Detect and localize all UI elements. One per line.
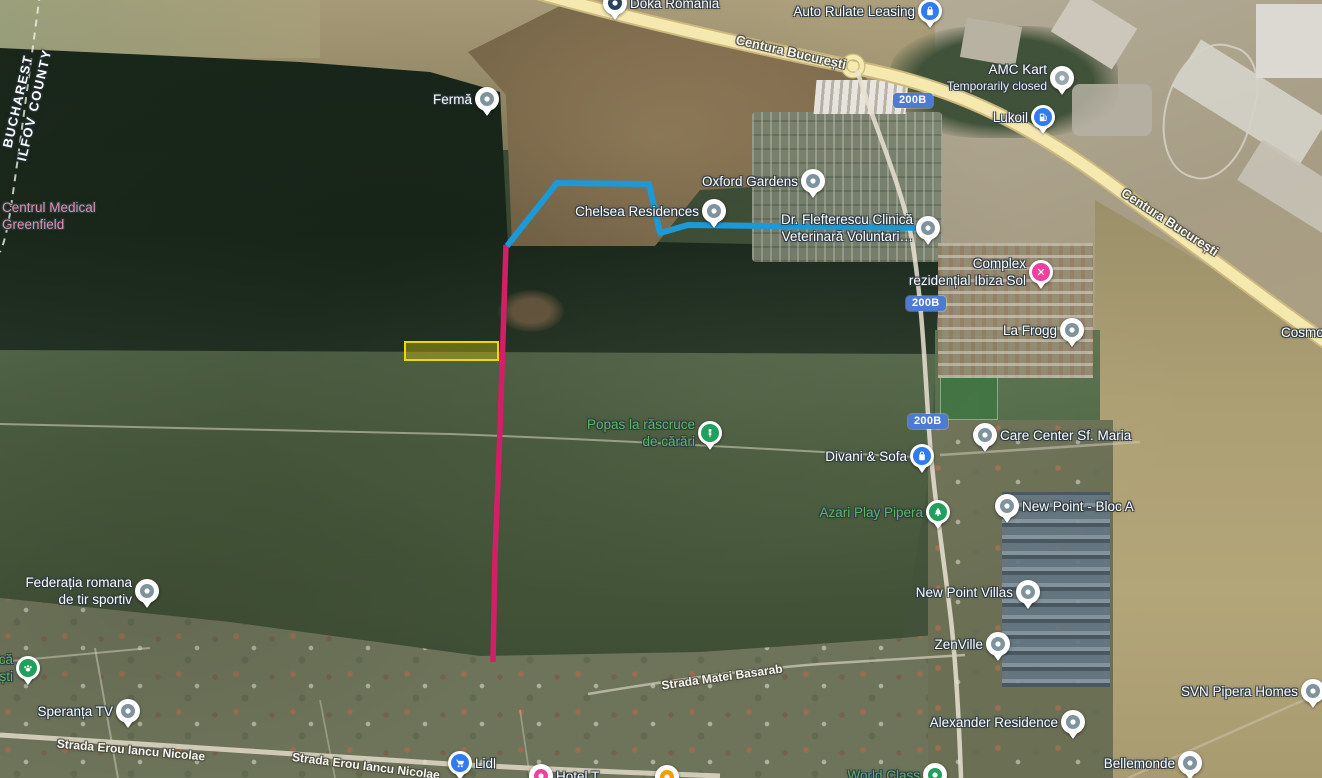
care-center-sf-maria-label[interactable]: Care Center Sf. Maria	[1000, 427, 1131, 444]
bag-icon	[924, 5, 936, 17]
svn-pipera-homes-label[interactable]: SVN Pipera Homes	[1181, 683, 1298, 700]
azari-play-pipera-marker[interactable]	[926, 500, 950, 531]
doka-romania-marker[interactable]	[603, 0, 627, 22]
dot-icon	[1067, 716, 1079, 728]
auto-rulate-leasing-marker[interactable]	[918, 0, 942, 30]
cosmo-partial-label[interactable]: Cosmo	[1281, 324, 1322, 341]
marker-tail	[980, 445, 990, 452]
dot-icon	[922, 222, 934, 234]
complex-ibiza-sol-marker[interactable]	[1029, 260, 1053, 291]
auto-rulate-leasing-pin[interactable]	[918, 0, 942, 23]
road-badge-200b: 200B	[893, 93, 933, 108]
dot-icon	[1022, 586, 1034, 598]
complex-ibiza-sol-label[interactable]: Complexrezidențial Ibiza Sol	[909, 255, 1026, 289]
lukoil-pin[interactable]	[1031, 105, 1055, 129]
marker-tail	[1057, 88, 1067, 95]
speranta-tv-pin[interactable]	[116, 699, 140, 723]
ferma-label[interactable]: Fermă	[433, 91, 472, 108]
lidl-pin[interactable]	[448, 751, 472, 775]
dot-icon	[1056, 72, 1068, 84]
dog-park-partial-pin[interactable]	[16, 656, 40, 680]
tree-icon	[932, 506, 944, 518]
new-point-bloc-a-pin[interactable]	[995, 494, 1019, 518]
bellemonde-pin[interactable]	[1178, 751, 1202, 775]
zenville-pin[interactable]	[986, 632, 1010, 656]
world-class-label[interactable]: World Class	[847, 767, 920, 778]
marker-tail	[1038, 127, 1048, 134]
orange-poi-partial-marker[interactable]	[655, 765, 679, 778]
marker-tail	[1036, 282, 1046, 289]
bag-icon	[916, 450, 928, 462]
dot-icon	[122, 705, 134, 717]
dot-icon	[535, 770, 547, 778]
divani-sofa-pin[interactable]	[910, 444, 934, 468]
marker-tail	[142, 601, 152, 608]
cart-icon	[454, 757, 466, 769]
marker-tail	[123, 721, 133, 728]
dot-icon	[1066, 324, 1078, 336]
world-class-marker[interactable]	[923, 763, 947, 778]
dot-icon	[708, 205, 720, 217]
amc-kart-label[interactable]: AMC KartTemporarily closed	[947, 61, 1047, 95]
centrul-medical-greenfield-label[interactable]: Centrul MedicalGreenfield	[2, 199, 96, 233]
lidl-marker[interactable]	[448, 751, 472, 778]
new-point-bloc-a-marker[interactable]	[995, 494, 1019, 525]
amc-kart-pin[interactable]	[1050, 66, 1074, 90]
divani-sofa-marker[interactable]	[910, 444, 934, 475]
speranta-tv-label[interactable]: Speranța TV	[37, 703, 113, 720]
marker-tail	[709, 221, 719, 228]
divani-sofa-label[interactable]: Divani & Sofa	[825, 448, 907, 465]
marker-tail	[993, 654, 1003, 661]
new-point-villas-label[interactable]: New Point Villas	[916, 584, 1013, 601]
oxford-gardens-marker[interactable]	[801, 169, 825, 200]
dog-park-partial-marker[interactable]	[16, 656, 40, 687]
popas-la-rascruce-label[interactable]: Popas la răscrucede cărări	[587, 416, 695, 450]
speranta-tv-marker[interactable]	[116, 699, 140, 730]
road-badge-200b: 200B	[908, 414, 948, 429]
dot-icon	[807, 175, 819, 187]
azari-play-pipera-pin[interactable]	[926, 500, 950, 524]
la-frogg-marker[interactable]	[1060, 318, 1084, 349]
oxford-gardens-pin[interactable]	[801, 169, 825, 193]
alexander-residence-pin[interactable]	[1061, 710, 1085, 734]
marker-tail	[23, 678, 33, 685]
map-canvas[interactable]: BUCHAREST ILFOV COUNTY Centura București…	[0, 0, 1322, 778]
marker-tail	[455, 773, 465, 778]
drawn-overlays[interactable]	[0, 0, 1322, 778]
marker-tail	[1068, 732, 1078, 739]
yellow-highlight-rectangle[interactable]	[405, 342, 498, 360]
flefterescu-vet-clinic-pin[interactable]	[916, 216, 940, 240]
federatia-tir-sportiv-label[interactable]: Federația romanade tir sportiv	[25, 574, 132, 608]
magenta-drawn-line[interactable]	[493, 245, 506, 662]
dot-icon	[141, 585, 153, 597]
bellemonde-marker[interactable]	[1178, 751, 1202, 778]
marker-tail	[1185, 773, 1195, 778]
marker-tail	[610, 13, 620, 20]
picnic-icon	[704, 427, 716, 439]
la-frogg-label[interactable]: La Frogg	[1003, 322, 1057, 339]
chelsea-residences-pin[interactable]	[702, 199, 726, 223]
marker-tail	[705, 443, 715, 450]
dot-icon	[661, 771, 673, 778]
bellemonde-label[interactable]: Bellemonde	[1104, 755, 1175, 772]
zenville-label[interactable]: ZenVille	[934, 636, 983, 653]
lidl-label[interactable]: Lidl	[475, 755, 496, 772]
dot-icon	[1001, 500, 1013, 512]
svn-pipera-homes-marker[interactable]	[1301, 679, 1322, 710]
dog-park-partial-label[interactable]: căști	[0, 651, 13, 685]
dot-icon	[1307, 685, 1319, 697]
alexander-residence-label[interactable]: Alexander Residence	[930, 714, 1058, 731]
new-point-villas-marker[interactable]	[1016, 580, 1040, 611]
marker-tail	[917, 466, 927, 473]
popas-la-rascruce-marker[interactable]	[698, 421, 722, 452]
marker-tail	[1023, 602, 1033, 609]
popas-la-rascruce-pin[interactable]	[698, 421, 722, 445]
azari-play-pipera-label[interactable]: Azari Play Pipera	[819, 504, 923, 521]
world-class-pin[interactable]	[923, 763, 947, 778]
fuel-icon	[1037, 111, 1049, 123]
dot-icon	[992, 638, 1004, 650]
tools-icon	[1035, 266, 1047, 278]
doka-romania-label[interactable]: Doka Romania	[630, 0, 719, 12]
dot-icon	[1184, 757, 1196, 769]
zenville-marker[interactable]	[986, 632, 1010, 663]
complex-ibiza-sol-pin[interactable]	[1029, 260, 1053, 284]
hotel-partial-pin[interactable]	[529, 764, 553, 778]
federatia-tir-sportiv-pin[interactable]	[135, 579, 159, 603]
alexander-residence-marker[interactable]	[1061, 710, 1085, 741]
la-frogg-pin[interactable]	[1060, 318, 1084, 342]
marker-tail	[933, 522, 943, 529]
dot-icon	[979, 429, 991, 441]
paw-icon	[22, 662, 34, 674]
auto-rulate-leasing-label[interactable]: Auto Rulate Leasing	[793, 3, 915, 20]
dot-icon	[929, 769, 941, 778]
svn-pipera-homes-pin[interactable]	[1301, 679, 1322, 703]
chelsea-residences-label[interactable]: Chelsea Residences	[575, 203, 699, 220]
road-badge-200b: 200B	[906, 296, 946, 311]
amc-kart-status: Temporarily closed	[947, 78, 1047, 95]
federatia-tir-sportiv-marker[interactable]	[135, 579, 159, 610]
ferma-pin[interactable]	[475, 87, 499, 111]
marker-tail	[925, 21, 935, 28]
oxford-gardens-label[interactable]: Oxford Gardens	[702, 173, 798, 190]
dot-icon	[609, 0, 621, 9]
flefterescu-vet-clinic-marker[interactable]	[916, 216, 940, 247]
marker-tail	[1067, 340, 1077, 347]
lukoil-marker[interactable]	[1031, 105, 1055, 136]
chelsea-residences-marker[interactable]	[702, 199, 726, 230]
marker-tail	[482, 109, 492, 116]
hotel-partial-label[interactable]: Hotel T	[556, 768, 599, 778]
lukoil-label[interactable]: Lukoil	[993, 109, 1028, 126]
new-point-bloc-a-label[interactable]: New Point - Bloc A	[1022, 498, 1134, 515]
marker-tail	[1308, 701, 1318, 708]
marker-tail	[923, 238, 933, 245]
dot-icon	[481, 93, 493, 105]
care-center-sf-maria-pin[interactable]	[973, 423, 997, 447]
ferma-marker[interactable]	[475, 87, 499, 118]
marker-tail	[1002, 516, 1012, 523]
new-point-villas-pin[interactable]	[1016, 580, 1040, 604]
flefterescu-vet-clinic-label[interactable]: Dr. Flefterescu ClinicăVeterinară Volunt…	[781, 211, 913, 245]
care-center-sf-maria-marker[interactable]	[973, 423, 997, 454]
amc-kart-marker[interactable]	[1050, 66, 1074, 97]
marker-tail	[808, 191, 818, 198]
orange-poi-partial-pin[interactable]	[655, 765, 679, 778]
hotel-partial-marker[interactable]	[529, 764, 553, 778]
